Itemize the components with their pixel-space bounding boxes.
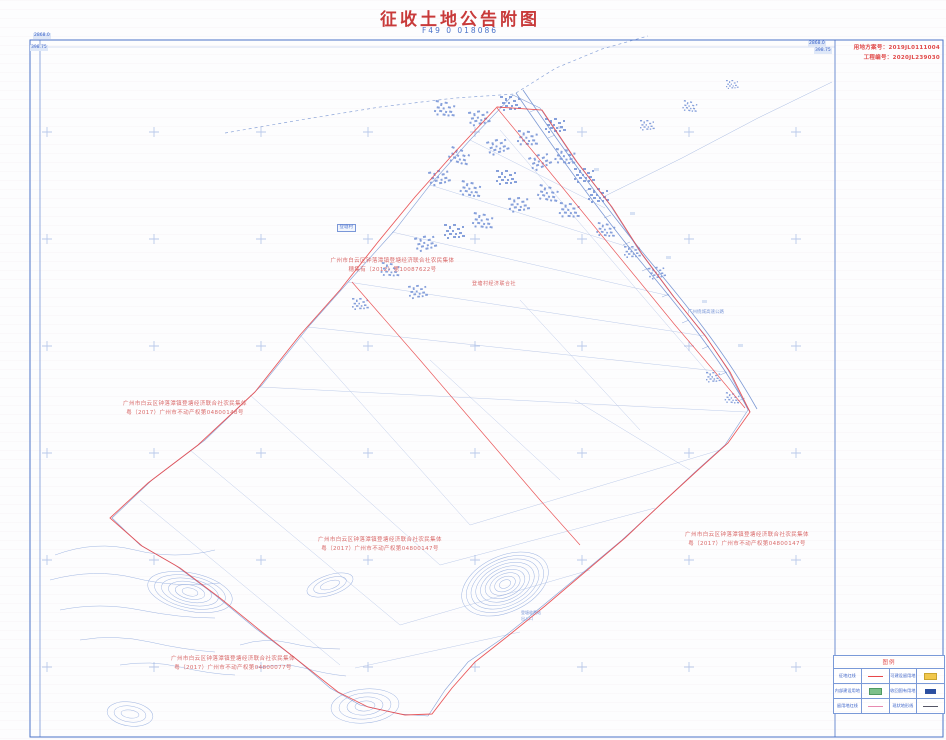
- annotation-line: 广州市白云区钟落潭镇登塘经济联合社农民集体: [290, 536, 470, 545]
- highway-name-label: 广州绕城高速公路: [688, 309, 724, 315]
- map-sheet: 征收土地公告附图 F49 0 018086: [0, 0, 946, 740]
- legend-symbol-green-fill: [861, 684, 889, 699]
- grid-coordinate-label: 398.75: [814, 48, 832, 54]
- ownership-annotation: 广州市白云区钟落潭镇登塘经济联合社农民集体 粤（2017）广州市不动产权第048…: [95, 400, 275, 418]
- ownership-annotation: 广州市白云区钟落潭镇登塘经济联合社农民集体 粤（2017）广州市不动产权第048…: [143, 655, 323, 673]
- grid-coordinate-label: 398.75: [30, 45, 48, 51]
- legend-label: 征地红线: [834, 669, 862, 684]
- legend-symbol-pink-line: [861, 699, 889, 714]
- legend-label: 内部建设用地: [834, 684, 862, 699]
- legend-symbol-blue-fill: [917, 684, 945, 699]
- annotation-line: 广州市白云区钟落潭镇登塘经济联合社农民集体: [143, 655, 323, 664]
- legend-symbol-yellow-fill: [917, 669, 945, 684]
- annotation-line: 粤（2017）广州市不动产权第04800077号: [143, 664, 323, 673]
- annotation-line: 粤（2017）广州市不动产权第04800147号: [658, 540, 836, 549]
- plan-number: 用地方案号：2019JL0111004: [840, 43, 940, 53]
- toll-station-label: 出入口: [521, 616, 533, 621]
- grid-coordinate-label: 2868.0: [808, 41, 826, 47]
- toll-station-label: 登塘收费站: [521, 610, 541, 615]
- legend-label: 收回国有用地: [889, 684, 917, 699]
- annotation-line: 粤（2017）广州市不动产权第04800148号: [95, 409, 275, 418]
- legend-label: 留用地红线: [834, 699, 862, 714]
- map-canvas: [0, 0, 946, 740]
- grid-coordinate-label: 2868.0: [33, 33, 51, 39]
- legend-label: 可建设留用地: [889, 669, 917, 684]
- annotation-line: 粤（2017）广州市不动产权第04800147号: [290, 545, 470, 554]
- legend-symbol-red-line: [861, 669, 889, 684]
- ownership-annotation: 广州市白云区钟落潭镇登塘经济联合社农民集体 粤（2017）广州市不动产权第048…: [290, 536, 470, 554]
- legend-symbol-dark-dash: [917, 699, 945, 714]
- village-committee-label: 登塘村经济联合社: [472, 280, 516, 287]
- village-name-label: 登塘村: [337, 224, 356, 232]
- annotation-line: 广州市白云区钟落潭镇登塘经济联合社农民集体: [95, 400, 275, 409]
- legend-title: 图例: [834, 656, 945, 669]
- annotation-line: 广州市白云区钟落潭镇登塘经济联合社农民集体: [658, 531, 836, 540]
- annotation-line: 广州市白云区钟落潭镇登塘经济联合社农民集体: [300, 257, 485, 266]
- ownership-annotation: 广州市白云区钟落潭镇登塘经济联合社农民集体 穗集有（2012）第10087622…: [300, 257, 485, 275]
- title-block: 用地方案号：2019JL0111004 工程编号：2020JL239030: [840, 43, 940, 63]
- annotation-line: 穗集有（2012）第10087622号: [300, 266, 485, 275]
- legend-label: 现状地形线: [889, 699, 917, 714]
- coordinate-cross-grid: [40, 47, 835, 737]
- ownership-annotation: 广州市白云区钟落潭镇登塘经济联合社农民集体 粤（2017）广州市不动产权第048…: [658, 531, 836, 549]
- project-number: 工程编号：2020JL239030: [840, 53, 940, 63]
- legend: 图例 征地红线 可建设留用地 内部建设用地 收回国有用地 留用地红线 现状地形线: [833, 655, 945, 714]
